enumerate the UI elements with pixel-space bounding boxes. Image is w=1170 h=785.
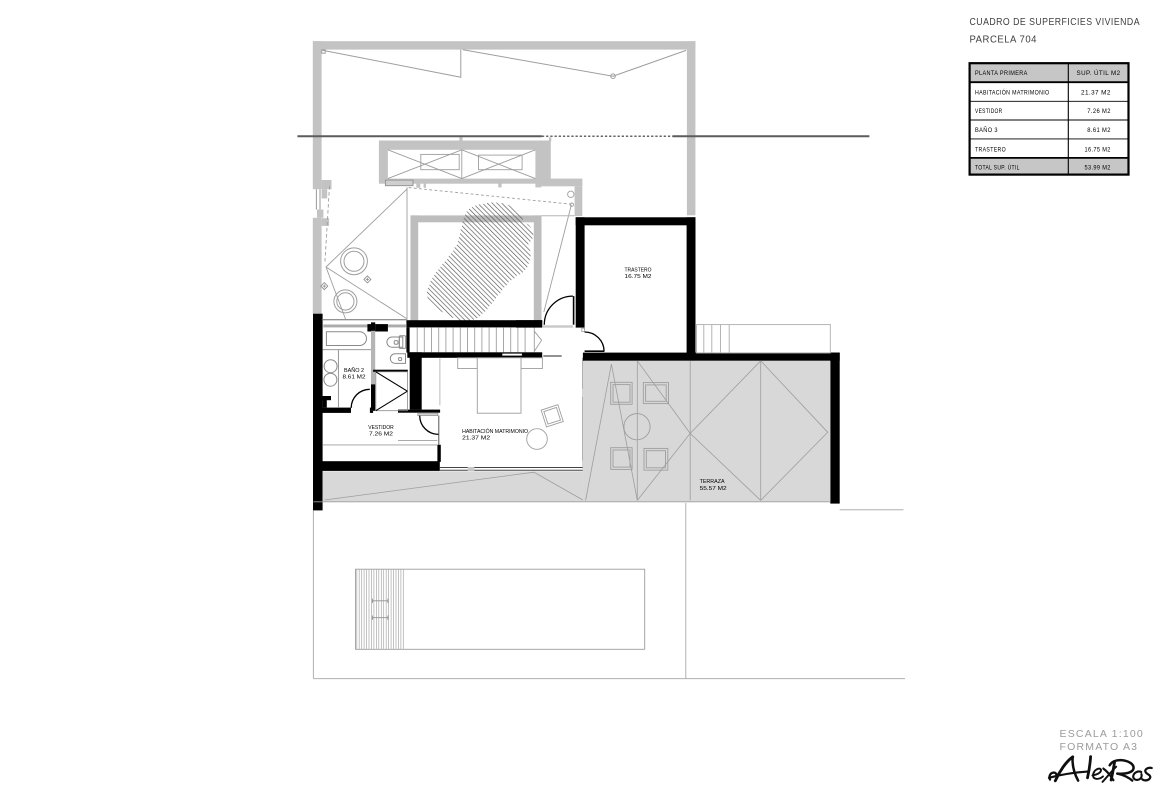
svg-text:PARCELA 704: PARCELA 704 [970,35,1038,46]
svg-text:HABITACIÓN MATRIMONIO: HABITACIÓN MATRIMONIO [975,87,1050,96]
svg-text:21.37 M2: 21.37 M2 [462,435,490,441]
svg-text:7.26 M2: 7.26 M2 [369,431,393,437]
svg-text:HABITACIÓN MATRIMONIO: HABITACIÓN MATRIMONIO [462,428,528,435]
svg-text:TERRAZA: TERRAZA [700,479,725,485]
svg-text:CUADRO DE SUPERFICIES VIVIE: CUADRO DE SUPERFICIES VIVIENDA [970,17,1141,28]
svg-text:55.57 M2: 55.57 M2 [700,486,727,492]
svg-text:ESCALA 1:100: ESCALA 1:100 [1060,728,1144,740]
svg-text:SUP. ÚTIL M2: SUP. ÚTIL M2 [1077,68,1121,77]
svg-text:TOTAL SUP. ÚTIL: TOTAL SUP. ÚTIL [975,162,1020,171]
svg-text:7.26 M2: 7.26 M2 [1087,108,1111,115]
svg-text:TRASTERO: TRASTERO [625,268,652,274]
svg-text:FORMATO A3: FORMATO A3 [1060,741,1139,753]
svg-text:8.61 M2: 8.61 M2 [343,374,366,380]
svg-text:21.37 M2: 21.37 M2 [1081,89,1111,96]
svg-text:16.75 M2: 16.75 M2 [1085,147,1111,154]
svg-text:8.61 M2: 8.61 M2 [1087,127,1111,134]
svg-text:VESTIDOR: VESTIDOR [975,108,1003,115]
svg-text:16.75 M2: 16.75 M2 [625,274,652,280]
svg-text:53.99 M2: 53.99 M2 [1085,164,1111,171]
svg-text:PLANTA PRIMERA: PLANTA PRIMERA [975,70,1028,77]
svg-text:VESTIDOR: VESTIDOR [368,425,394,431]
svg-text:BAÑO 3: BAÑO 3 [975,125,998,134]
svg-text:TRASTERO: TRASTERO [975,147,1006,154]
svg-text:BAÑO 2: BAÑO 2 [344,367,364,374]
